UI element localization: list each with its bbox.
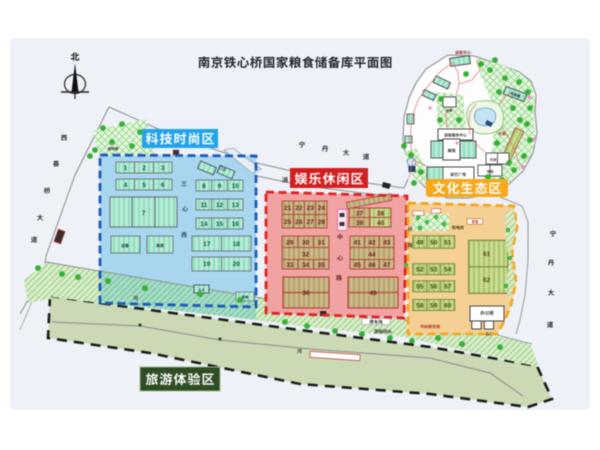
svg-text:32: 32 [302,252,310,259]
svg-text:21: 21 [284,205,292,212]
svg-text:61: 61 [483,251,491,258]
svg-text:31: 31 [318,240,326,247]
svg-text:15: 15 [216,221,224,228]
svg-text:12: 12 [216,202,224,209]
svg-text:45: 45 [354,262,362,269]
svg-text:22: 22 [295,205,303,212]
svg-text:51: 51 [444,240,452,247]
svg-text:35: 35 [318,262,326,269]
svg-text:53: 53 [430,267,438,274]
svg-text:33: 33 [286,262,294,269]
svg-text:55: 55 [416,284,424,291]
svg-text:40: 40 [377,220,385,227]
svg-text:8: 8 [202,183,206,190]
svg-text:17: 17 [203,241,211,248]
svg-text:59: 59 [430,303,438,310]
svg-text:54: 54 [444,267,452,274]
svg-text:5: 5 [142,182,146,189]
svg-text:1: 1 [124,165,128,172]
svg-text:30: 30 [302,240,310,247]
svg-text:7: 7 [142,210,146,217]
svg-text:6: 6 [161,182,165,189]
svg-text:60: 60 [444,303,452,310]
svg-text:2: 2 [142,165,146,172]
svg-text:39: 39 [356,220,364,227]
svg-text:56: 56 [430,284,438,291]
svg-text:10: 10 [232,183,240,190]
svg-text:18: 18 [233,241,241,248]
svg-text:36: 36 [302,290,310,297]
svg-text:44: 44 [368,252,376,259]
svg-text:34: 34 [302,262,310,269]
svg-text:48: 48 [369,290,377,297]
svg-text:25: 25 [284,219,292,226]
svg-text:27: 27 [306,219,314,226]
svg-text:24: 24 [318,205,326,212]
svg-text:50: 50 [430,240,438,247]
svg-text:26: 26 [295,219,303,226]
svg-text:58: 58 [416,303,424,310]
svg-text:41: 41 [354,240,362,247]
svg-text:57: 57 [444,284,452,291]
svg-text:52: 52 [416,267,424,274]
svg-text:29: 29 [286,240,294,247]
svg-text:13: 13 [232,202,240,209]
svg-text:38: 38 [377,211,385,218]
svg-text:37: 37 [356,211,364,218]
svg-text:16: 16 [232,221,240,228]
svg-text:47: 47 [383,262,391,269]
svg-text:14: 14 [200,221,208,228]
svg-text:28: 28 [318,219,326,226]
svg-text:3: 3 [161,165,165,172]
svg-text:20: 20 [233,261,241,268]
svg-text:42: 42 [368,240,376,247]
svg-text:11: 11 [200,202,207,209]
svg-text:19: 19 [203,261,211,268]
svg-text:23: 23 [306,205,314,212]
svg-text:62: 62 [483,277,491,284]
svg-text:9: 9 [218,183,222,190]
svg-text:43: 43 [383,240,391,247]
svg-text:49: 49 [416,240,424,247]
svg-text:46: 46 [368,262,376,269]
svg-text:4: 4 [124,182,128,189]
